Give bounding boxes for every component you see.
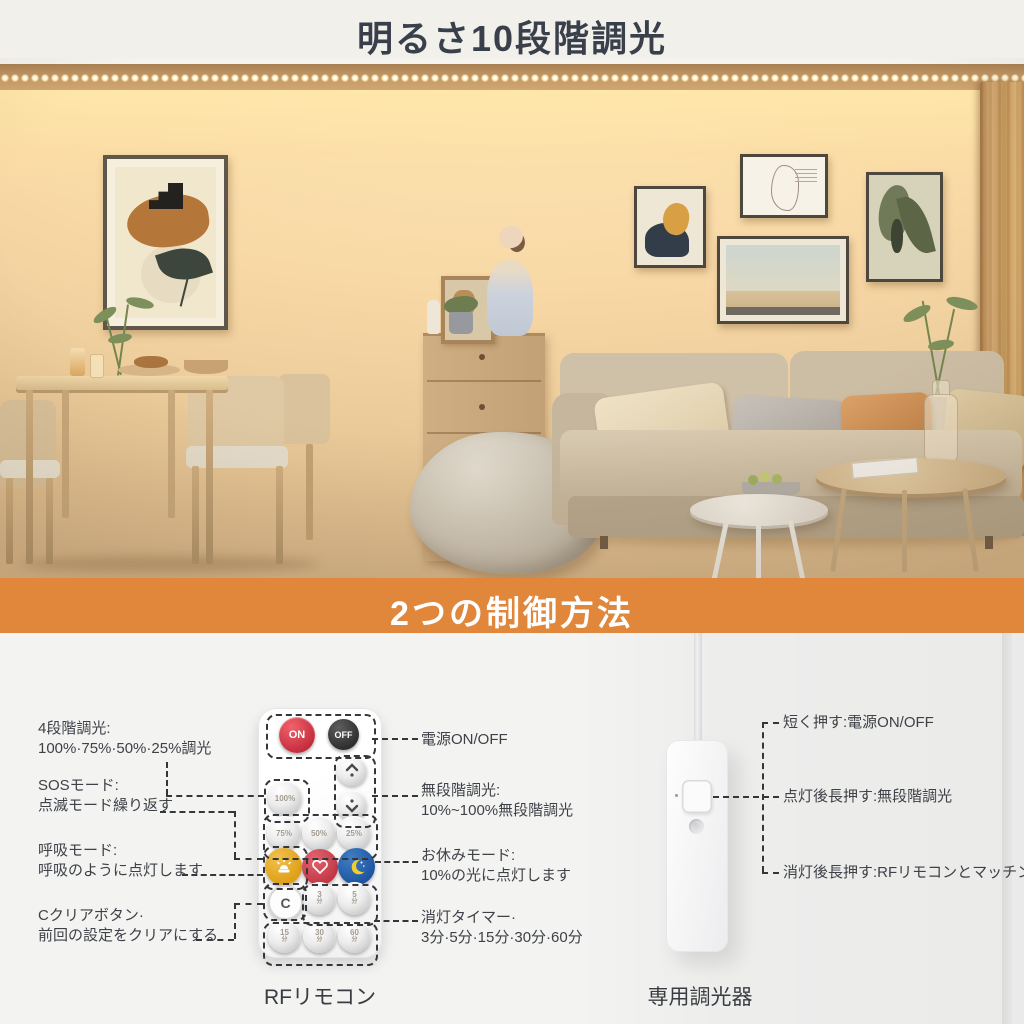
connector-dimmer-mid <box>713 796 779 798</box>
label-breath-title: 呼吸モード: <box>38 841 203 861</box>
section-banner: 2つの制御方法 <box>0 578 1024 633</box>
group-box-timer-top <box>302 884 378 926</box>
label-timer-title: 消灯タイマー· <box>421 908 583 928</box>
label-sleep-desc: 10%の光に点灯します <box>421 866 571 886</box>
label-power-title: 電源ON/OFF <box>421 730 508 750</box>
label-4step: 4段階調光: 100%·75%·50%·25%調光 <box>38 719 211 759</box>
section-banner-title: 2つの制御方法 <box>0 586 1024 635</box>
label-sos-desc: 点滅モード繰り返す <box>38 796 173 816</box>
connector-sleep <box>375 861 418 863</box>
connector-dimmer-top <box>762 722 779 724</box>
top-banner-title: 明るさ10段階調光 <box>0 10 1024 62</box>
wall-corner-line <box>1002 633 1012 1024</box>
wall-shade <box>576 633 1024 1024</box>
label-clear: Cクリアボタン· 前回の設定をクリアにする <box>38 906 218 946</box>
label-clear-desc: 前回の設定をクリアにする <box>38 926 218 946</box>
dimmer-label-long-press-off: 消灯後長押す:RFリモコンとマッチング <box>783 863 1024 883</box>
label-4step-title: 4段階調光: <box>38 719 211 739</box>
connector-stepless <box>372 795 418 797</box>
label-breath-desc: 呼吸のように点灯します <box>38 861 203 881</box>
remote-caption: RFリモコン <box>240 981 400 1011</box>
product-infographic: 明るさ10段階調光 <box>0 0 1024 1024</box>
top-banner: 明るさ10段階調光 <box>0 0 1024 58</box>
label-timer-desc: 3分·5分·15分·30分·60分 <box>421 928 583 948</box>
dimmer-label-short-press: 短く押す:電源ON/OFF <box>783 713 934 733</box>
photo-vignette <box>0 58 1024 578</box>
group-box-power <box>266 714 376 759</box>
control-methods-section: ON OFF 100% 75% 50% 25% <box>0 633 1024 1024</box>
label-stepless-desc: 10%~100%無段階調光 <box>421 801 573 821</box>
connector-clear <box>234 903 236 939</box>
label-clear-title: Cクリアボタン· <box>38 906 218 926</box>
label-sos: SOSモード: 点滅モード繰り返す <box>38 776 173 816</box>
label-stepless: 無段階調光: 10%~100%無段階調光 <box>421 781 573 821</box>
connector-power <box>372 738 418 740</box>
connector-clear <box>234 903 263 905</box>
group-box-clear <box>263 883 307 921</box>
label-breath: 呼吸モード: 呼吸のように点灯します <box>38 841 203 881</box>
label-timer: 消灯タイマー· 3分·5分·15分·30分·60分 <box>421 908 583 948</box>
connector-dimmer-bottom <box>762 872 779 874</box>
connector-sos <box>234 858 263 860</box>
dimmer-caption: 専用調光器 <box>625 981 775 1011</box>
dimmer-indicator-dot <box>675 794 678 797</box>
label-4step-desc: 100%·75%·50%·25%調光 <box>38 739 211 759</box>
label-sleep-title: お休みモード: <box>421 846 571 866</box>
label-sleep: お休みモード: 10%の光に点灯します <box>421 846 571 886</box>
connector-4step <box>166 795 264 797</box>
label-power: 電源ON/OFF <box>421 730 508 750</box>
dimmer-label-long-press-on: 点灯後長押す:無段階調光 <box>783 787 952 807</box>
label-stepless-title: 無段階調光: <box>421 781 573 801</box>
dimmer-device <box>666 740 728 952</box>
connector-timer <box>374 920 418 922</box>
dimmer-cable <box>694 633 702 742</box>
dimmer-sensor <box>689 819 704 834</box>
label-sos-title: SOSモード: <box>38 776 173 796</box>
group-box-timer-bottom <box>263 922 378 966</box>
living-room-photo <box>0 58 1024 578</box>
heart-icon <box>311 859 329 875</box>
connector-sos <box>234 811 236 858</box>
dimmer-button <box>682 780 712 813</box>
